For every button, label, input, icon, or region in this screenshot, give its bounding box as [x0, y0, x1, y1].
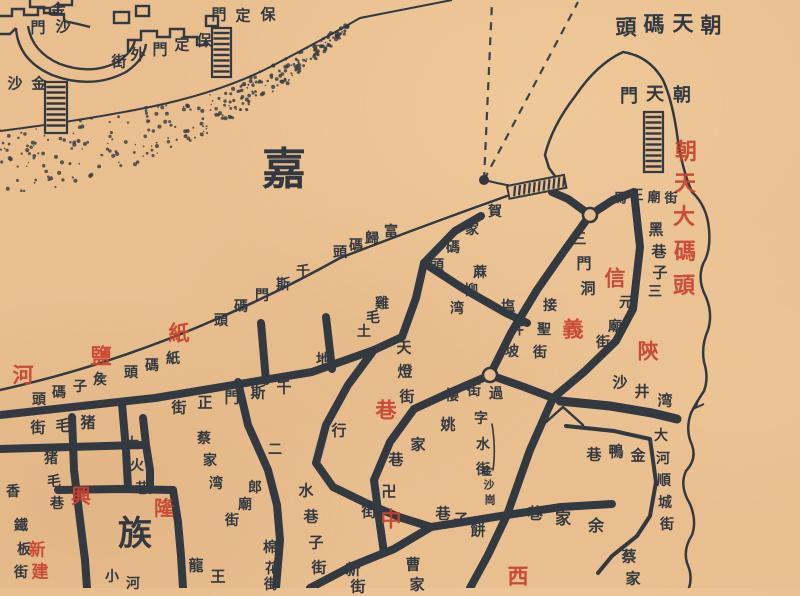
sanmendong-label: 洞	[580, 282, 595, 297]
mawang-temple-street-label: 街	[664, 193, 677, 206]
zhi-wharf-label: 紙	[166, 352, 180, 366]
zishui-street-label: 水	[476, 438, 490, 452]
dahe-shuncheng-street-label: 街	[660, 518, 674, 532]
wan-street-label: 卍	[381, 485, 396, 500]
chaotian-big-wharf-red-label: 大	[673, 206, 695, 228]
dahuo-alley-label: 火	[130, 459, 144, 473]
yujia-alley-label: 余	[588, 518, 604, 534]
erlang-temple-street-label: 二	[268, 443, 282, 457]
dahe-shuncheng-street-label: 順	[657, 474, 671, 488]
sanyuan-temple-street-label: 元	[619, 296, 633, 310]
erlang-temple-street-label: 街	[225, 514, 239, 528]
houzi-wharf-label: 碼	[52, 386, 66, 400]
yaojia-alley-label: 姚	[440, 418, 455, 433]
dahe-shuncheng-street-label: 城	[658, 496, 672, 510]
tieban-street-label: 鐵	[14, 519, 28, 533]
jinshagang-label: 金	[482, 466, 493, 477]
mianhua-street-label: 街	[264, 578, 278, 592]
shajingwan-label: 井	[634, 385, 649, 400]
sanyuan-temple-street-label: 廟	[608, 320, 622, 334]
dahuo-alley-label: 巷	[135, 482, 149, 496]
baoding-gate-label: 保	[260, 8, 275, 23]
wan-street-label: 街	[361, 505, 376, 520]
tiandeng-street-label: 燈	[397, 365, 412, 380]
xinjian-red-label: 建	[32, 565, 49, 582]
caojia-partial-label: 曹	[405, 558, 420, 573]
guojielou-label: 過	[489, 387, 503, 401]
baoding-gate-outer-street-label: 保	[196, 34, 211, 49]
caojia-partial-label: 家	[409, 578, 424, 593]
xiaohe-partial-label: 小	[105, 570, 119, 584]
hejia-wharf-label: 賀	[488, 205, 502, 219]
xinglong-red-label: 興	[71, 486, 91, 506]
longwang-partial-label: 王	[210, 570, 225, 585]
houzi-wharf-label: 矦	[93, 373, 107, 387]
yaojia-alley-label: 家	[410, 438, 425, 453]
bingzi-alley-label: 巷	[435, 507, 450, 522]
zhumao-alley-label: 猪	[44, 452, 58, 466]
qiansimen-wharf-label: 千	[296, 265, 310, 279]
jinsha-gate-label: 沙	[55, 20, 70, 35]
mawang-temple-street-label: 馬	[613, 193, 626, 206]
jimao-tudi-label: 毛	[366, 311, 380, 325]
tiandeng-street-label: 天	[396, 341, 411, 356]
xinyi-red-label: 義	[563, 319, 584, 340]
chaotian-wharf-label: 天	[673, 13, 694, 34]
dahe-shuncheng-street-label: 大	[654, 429, 668, 443]
jinya-alley-label: 鴨	[608, 445, 623, 460]
zhi-wharf-label: 碼	[145, 359, 159, 373]
mianhua-street-label: 花	[265, 562, 279, 576]
jinsha-gate-label: 門	[30, 21, 45, 36]
fugui-wharf-label: 富	[384, 225, 398, 239]
shuixiangzi-street-label: 巷	[303, 510, 318, 525]
baoding-gate-outer-street-label: 門	[152, 43, 167, 58]
fugui-wharf-label: 碼	[349, 239, 363, 253]
maliuwan-label: 湾	[450, 302, 464, 316]
erlang-temple-street-label: 郎	[248, 481, 262, 495]
jinsha-gate-label: 金	[50, 3, 65, 18]
jialing-river-char: 嘉	[262, 148, 306, 192]
zhumao-street-label: 街	[30, 421, 45, 436]
qiansimen-main-street-label: 斯	[250, 386, 265, 401]
xinjian-red-label: 新	[29, 543, 46, 560]
zhong-red-label: 中	[381, 509, 402, 530]
baoding-gate-label: 定	[235, 9, 250, 24]
zu-big-char: 族	[118, 517, 152, 551]
chaotian-wharf-label: 頭	[616, 17, 637, 38]
zishui-street-label: 字	[474, 412, 488, 426]
xi-red-label: 西	[508, 566, 529, 587]
qiansimen-main-street-label: 門	[224, 391, 239, 406]
mianhua-street-label: 棉	[263, 541, 277, 555]
longwang-partial-label: 龍	[188, 559, 203, 574]
jiesheng-street-label: 接	[543, 299, 557, 313]
sanmendong-label: 門	[576, 257, 591, 272]
bingzi-alley-label: 子	[453, 513, 468, 528]
qiansimen-wharf-label: 頭	[214, 314, 228, 328]
baoding-gate-label: 門	[211, 8, 226, 23]
zhumao-street-label: 猪	[80, 416, 95, 431]
shuixiangzi-street-label: 街	[311, 561, 326, 576]
xinglong-red-label: 隆	[154, 498, 174, 518]
houzi-wharf-label: 子	[73, 380, 87, 394]
xiaohe-partial-label: 河	[126, 577, 140, 591]
caijia-partial-label: 蔡	[621, 550, 636, 565]
zhumao-street-label: 毛	[55, 419, 70, 434]
jinsha-label: 金	[31, 77, 46, 92]
qiansimen-main-street-label: 千	[276, 381, 291, 396]
zhi-wharf-label: 頭	[124, 366, 138, 380]
qiansimen-main-street-label: 街	[171, 401, 186, 416]
jimao-tudi-label: 土	[357, 325, 371, 339]
shuixiangzi-street-label: 水	[298, 484, 313, 499]
caijia-partial-label: 家	[625, 572, 640, 587]
shuixiangzi-street-label: 子	[308, 536, 323, 551]
guojielou-label: 樓	[445, 389, 459, 403]
chaotian-wharf-label: 碼	[644, 14, 665, 35]
xinyi-red-label: 信	[605, 268, 626, 289]
map-labels: 金沙門保定門保定門外街金沙嘉紙鹽河千斯門碼頭富歸碼頭紙碼頭矦子碼頭賀家碼頭朝天碼…	[0, 0, 800, 588]
hei-alley-label: 黑	[648, 223, 663, 238]
chaotian-gate-label: 天	[646, 86, 664, 104]
dahe-shuncheng-street-label: 河	[656, 452, 670, 466]
fugui-wharf-label: 歸	[365, 232, 379, 246]
shan-red-label: 陝	[638, 341, 659, 362]
maliuwan-label: 柳	[464, 284, 478, 298]
hei-alley-label: 巷	[651, 245, 666, 260]
hejia-wharf-label: 碼	[446, 241, 460, 255]
jinshagang-label: 崗	[485, 495, 496, 506]
caijiawan-label: 湾	[209, 477, 223, 491]
jimao-tudi-label: 地	[316, 353, 330, 367]
caijiawan-label: 蔡	[197, 432, 211, 446]
yujia-alley-label: 巷	[527, 506, 543, 522]
guojielou-label: 街	[467, 384, 481, 398]
yanjingpo-label: 塩	[501, 300, 515, 314]
yanjingpo-label: 井	[510, 323, 524, 337]
sanyuan-temple-street-label: 三	[648, 285, 662, 299]
chaotian-wharf-label: 朝	[701, 15, 722, 36]
jinya-alley-label: 巷	[586, 448, 601, 463]
yaojia-alley-label: 巷	[388, 453, 403, 468]
baoding-gate-outer-street-label: 定	[174, 38, 189, 53]
jimao-tudi-label: 雞	[375, 297, 389, 311]
xinjie-partial-label: 新	[345, 563, 360, 578]
shajingwan-label: 沙	[612, 376, 627, 391]
baoding-gate-outer-street-label: 外	[130, 48, 145, 63]
mawang-temple-street-label: 廟	[647, 192, 660, 205]
chaotian-gate-label: 門	[620, 88, 638, 106]
qiansimen-main-street-label: 正	[197, 396, 212, 411]
historical-city-map: { "map": { "colors": { "paper": "#e9bf90…	[0, 0, 800, 588]
houzi-wharf-label: 頭	[32, 393, 46, 407]
xiang-partial-label: 香	[6, 485, 20, 499]
maliuwan-label: 蔴	[473, 266, 487, 280]
chaotian-big-wharf-red-label: 碼	[674, 241, 696, 263]
xing-char-label: 行	[331, 424, 346, 439]
jinsha-label: 沙	[7, 77, 22, 92]
erlang-temple-street-label: 廟	[238, 498, 252, 512]
tieban-street-label: 街	[14, 566, 28, 580]
jiesheng-street-label: 街	[533, 346, 547, 360]
hei-alley-label: 子	[652, 266, 667, 281]
fugui-wharf-label: 頭	[333, 246, 347, 260]
tiandeng-street-label: 街	[399, 390, 414, 405]
xinjie-partial-label: 街	[350, 580, 365, 595]
sanmendong-label: 三	[571, 232, 586, 247]
sanyuan-temple-street-label: 街	[596, 336, 610, 350]
yujia-alley-label: 家	[555, 511, 571, 527]
chaotian-gate-label: 朝	[673, 87, 691, 105]
jinya-alley-label: 金	[630, 449, 645, 464]
xiang-red-label: 巷	[376, 400, 397, 421]
jinshagang-label: 沙	[484, 480, 495, 491]
zhumao-alley-label: 巷	[50, 497, 64, 511]
chaotian-big-wharf-red-label: 朝	[675, 141, 697, 163]
hejia-wharf-label: 家	[465, 223, 479, 237]
zhiyanhe-red-label: 紙	[169, 323, 190, 344]
zhiyanhe-red-label: 河	[13, 365, 34, 386]
shajingwan-label: 湾	[657, 394, 672, 409]
zhiyanhe-red-label: 鹽	[91, 346, 112, 367]
yanjingpo-label: 坡	[505, 345, 519, 359]
qiansimen-wharf-label: 斯	[276, 278, 290, 292]
baoding-gate-outer-street-label: 街	[111, 55, 126, 70]
qiansimen-wharf-label: 門	[255, 289, 269, 303]
qiansimen-wharf-label: 碼	[234, 300, 248, 314]
caijiawan-label: 家	[203, 454, 217, 468]
mawang-temple-street-label: 王	[630, 190, 643, 203]
zhumao-alley-label: 毛	[47, 475, 61, 489]
jiesheng-street-label: 聖	[537, 323, 551, 337]
dahuo-alley-label: 大	[125, 437, 139, 451]
bingzi-alley-label: 餅	[470, 524, 485, 539]
hejia-wharf-label: 頭	[430, 259, 444, 273]
chaotian-big-wharf-red-label: 頭	[673, 275, 695, 297]
